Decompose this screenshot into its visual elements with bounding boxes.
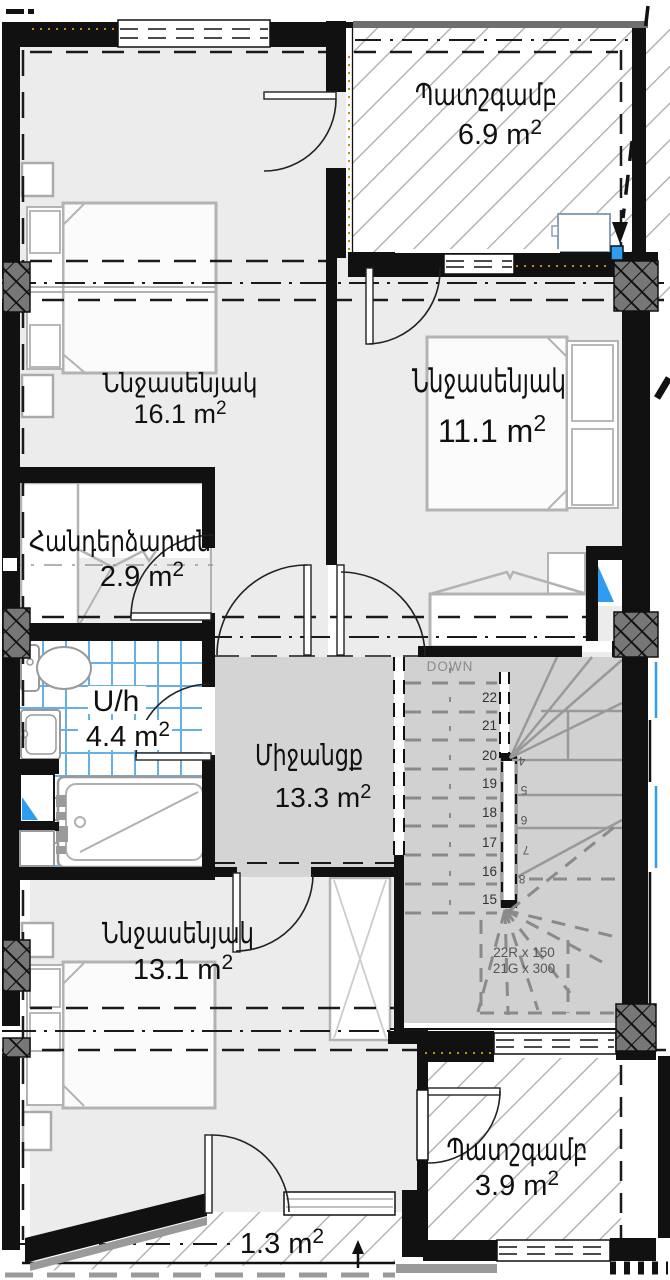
svg-text:2.9 m2: 2.9 m2 (100, 558, 184, 593)
svg-text:5: 5 (520, 783, 527, 797)
svg-text:16: 16 (482, 864, 497, 879)
svg-text:8: 8 (518, 872, 525, 886)
svg-text:21: 21 (482, 718, 497, 733)
svg-text:4.4 m2: 4.4 m2 (86, 718, 170, 753)
svg-text:21G x 300: 21G x 300 (493, 961, 555, 976)
svg-text:4: 4 (518, 754, 525, 768)
svg-text:18: 18 (482, 805, 497, 820)
svg-text:16.1 m2: 16.1 m2 (133, 398, 226, 429)
svg-text:U/h: U/h (93, 685, 140, 718)
svg-text:DOWN: DOWN (427, 659, 474, 674)
svg-text:22R x 150: 22R x 150 (493, 945, 555, 960)
svg-text:6: 6 (520, 813, 527, 827)
svg-text:13.1 m2: 13.1 m2 (133, 951, 233, 986)
svg-text:11.1 m2: 11.1 m2 (438, 410, 546, 449)
svg-text:6.9 m2: 6.9 m2 (458, 116, 542, 151)
svg-text:17: 17 (482, 835, 497, 850)
svg-text:1.3 m2: 1.3 m2 (240, 1225, 324, 1260)
svg-text:22: 22 (482, 690, 497, 705)
svg-text:15: 15 (482, 892, 497, 907)
svg-text:20: 20 (482, 748, 497, 763)
svg-text:3.9 m2: 3.9 m2 (475, 1167, 559, 1202)
svg-text:7: 7 (522, 843, 529, 857)
svg-text:19: 19 (482, 776, 497, 791)
svg-text:13.3 m2: 13.3 m2 (275, 781, 372, 813)
